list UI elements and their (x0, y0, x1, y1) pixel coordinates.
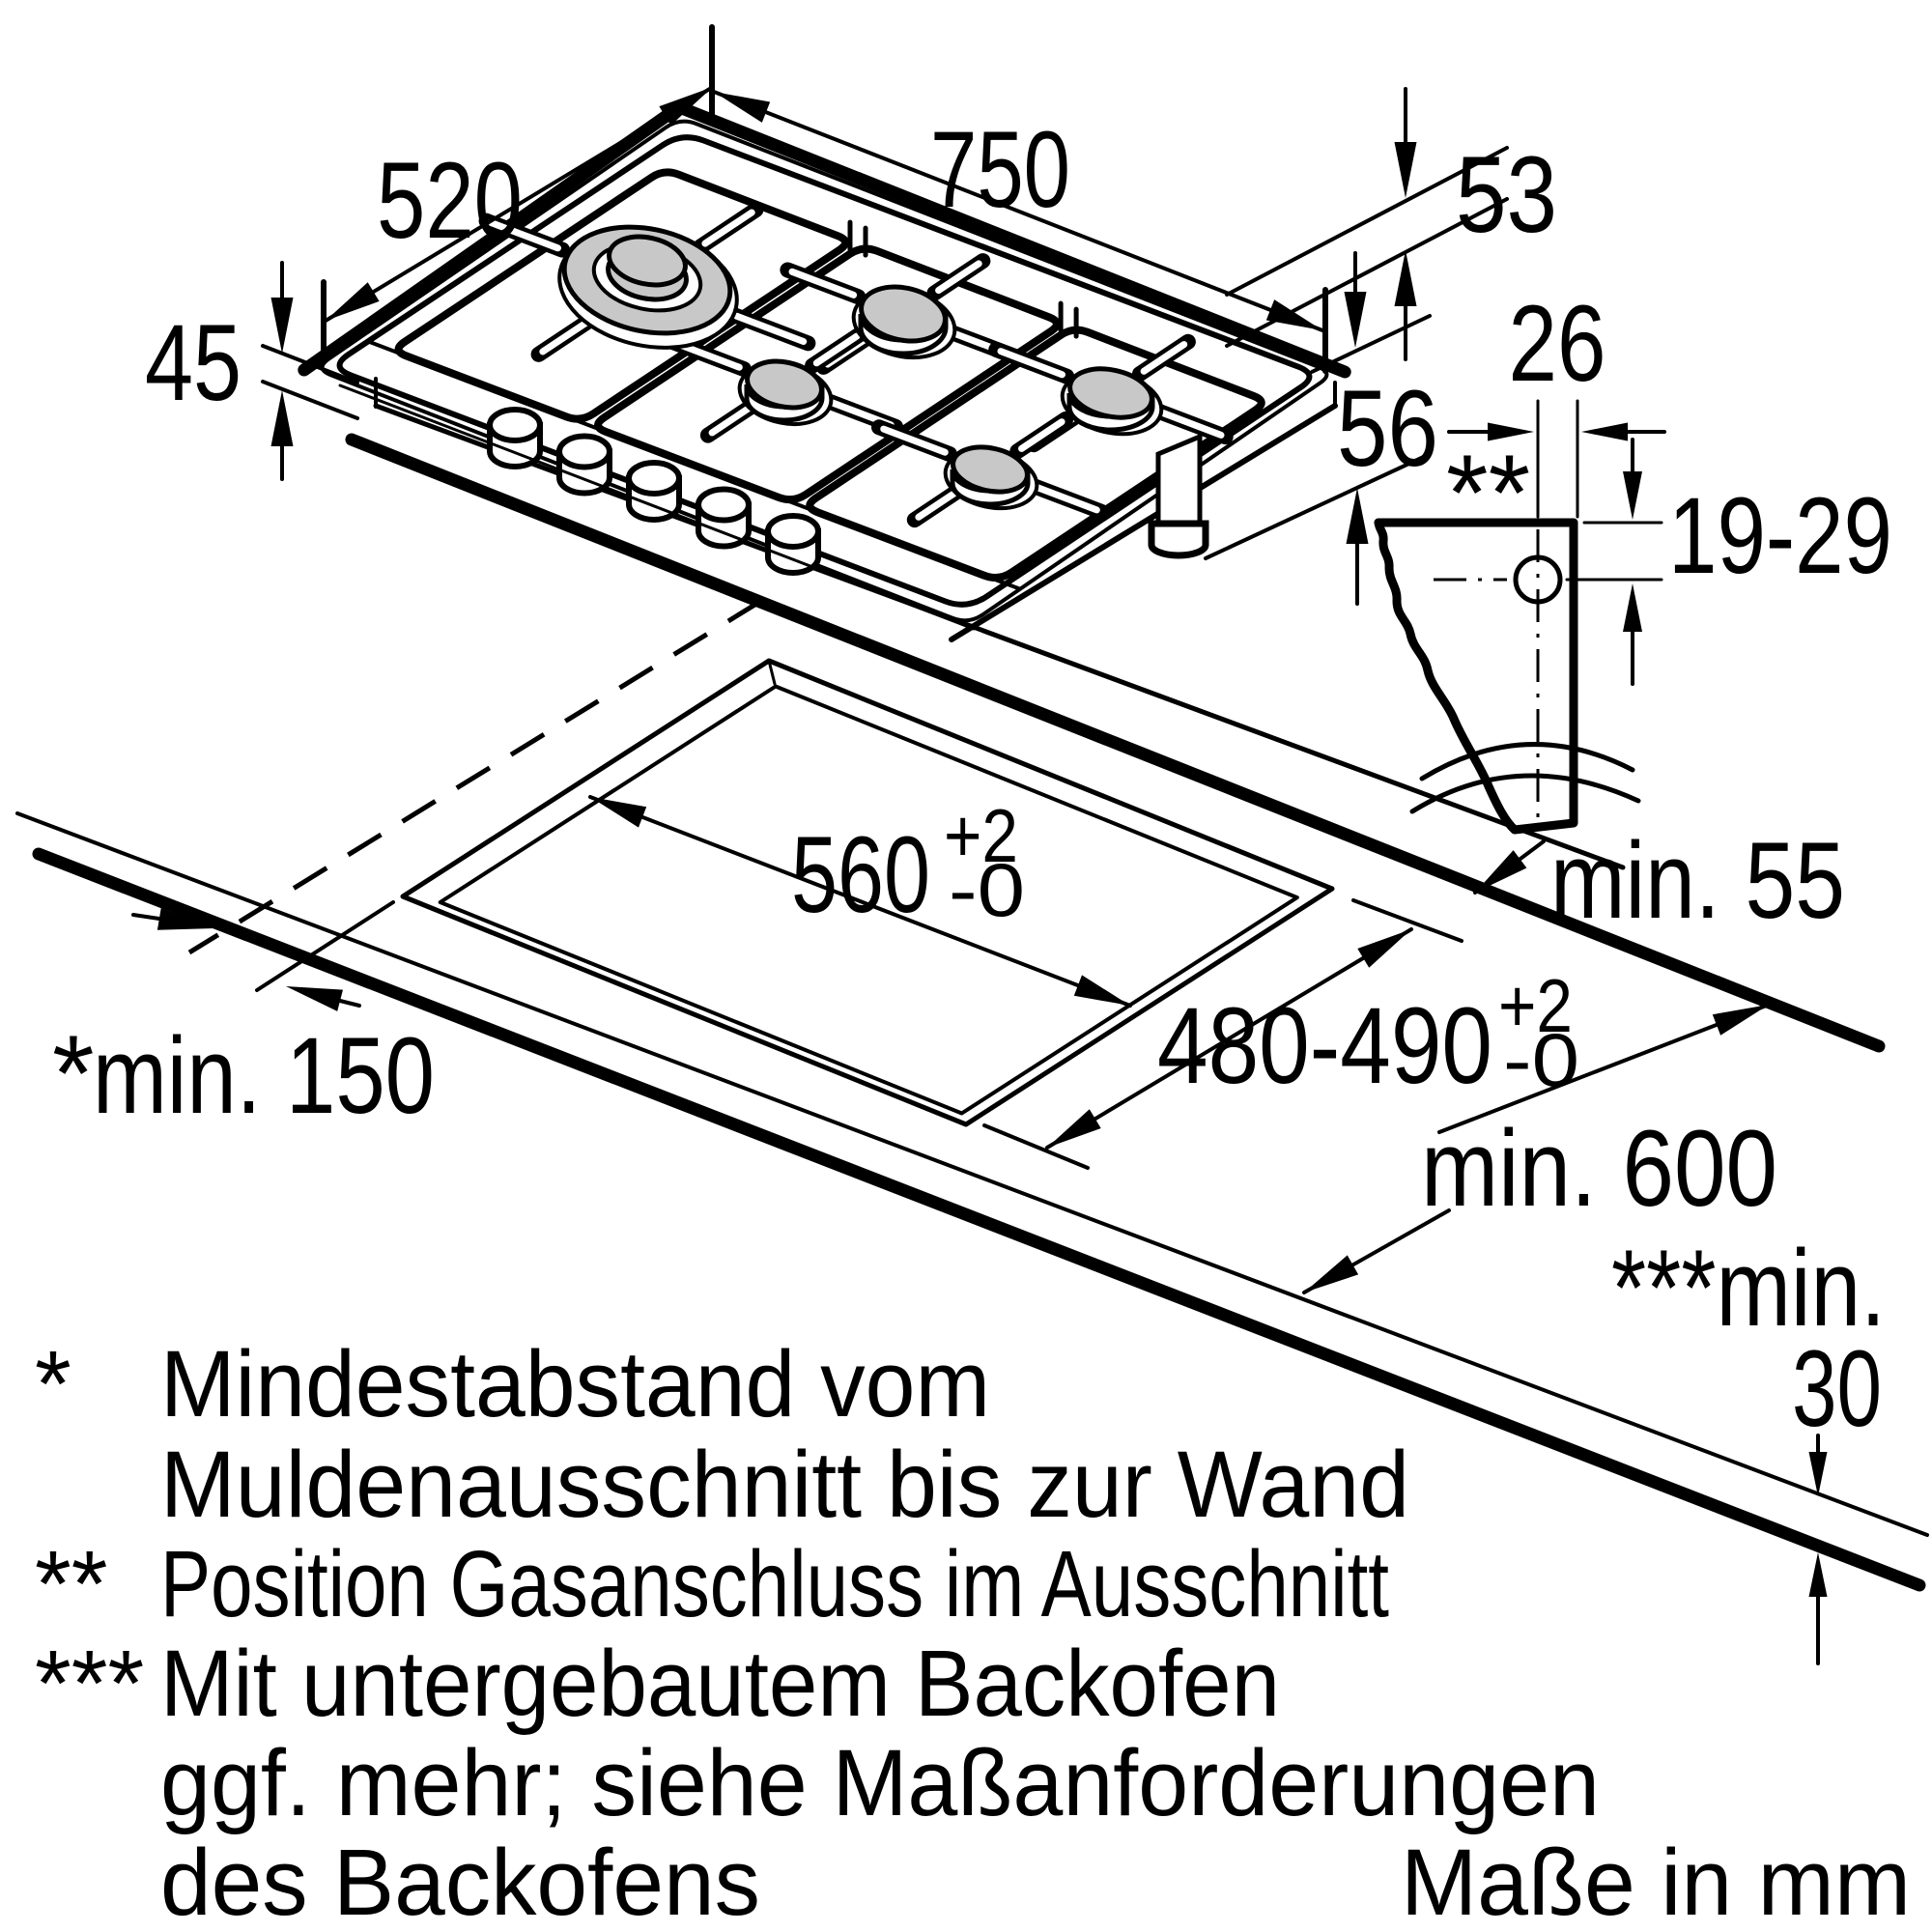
svg-text:520: 520 (377, 140, 523, 261)
svg-text:Mindestabstand vom: Mindestabstand vom (160, 1331, 990, 1436)
svg-text:45: 45 (145, 302, 241, 423)
svg-text:min. 600: min. 600 (1421, 1108, 1777, 1229)
svg-text:ggf. mehr; siehe Maßanforderun: ggf. mehr; siehe Maßanforderungen (160, 1730, 1600, 1835)
svg-text:Muldenausschnitt bis zur Wand: Muldenausschnitt bis zur Wand (160, 1432, 1409, 1537)
svg-text:26: 26 (1509, 283, 1606, 404)
svg-text:53: 53 (1456, 134, 1557, 255)
svg-text:30: 30 (1792, 1328, 1882, 1449)
svg-text:-0: -0 (949, 847, 1025, 932)
svg-text:*: * (52, 1013, 95, 1134)
svg-text:Position Gasanschluss im Aussc: Position Gasanschluss im Ausschnitt (160, 1531, 1389, 1636)
svg-text:750: 750 (930, 109, 1070, 230)
svg-text:***: *** (35, 1631, 144, 1736)
svg-text:480-490: 480-490 (1157, 985, 1492, 1106)
svg-text:Maße in mm: Maße in mm (1401, 1830, 1911, 1932)
svg-text:des Backofens: des Backofens (160, 1830, 760, 1932)
svg-text:-0: -0 (1503, 1017, 1579, 1102)
svg-text:**: ** (1446, 433, 1530, 554)
svg-text:Mit untergebautem Backofen: Mit untergebautem Backofen (160, 1631, 1280, 1736)
svg-text:min. 150: min. 150 (93, 1015, 435, 1136)
svg-text:56: 56 (1337, 368, 1438, 489)
svg-text:19-29: 19-29 (1668, 475, 1892, 596)
svg-text:560: 560 (791, 814, 930, 935)
svg-text:**: ** (35, 1531, 108, 1636)
svg-text:min. 55: min. 55 (1550, 820, 1845, 941)
svg-text:*: * (35, 1331, 71, 1436)
